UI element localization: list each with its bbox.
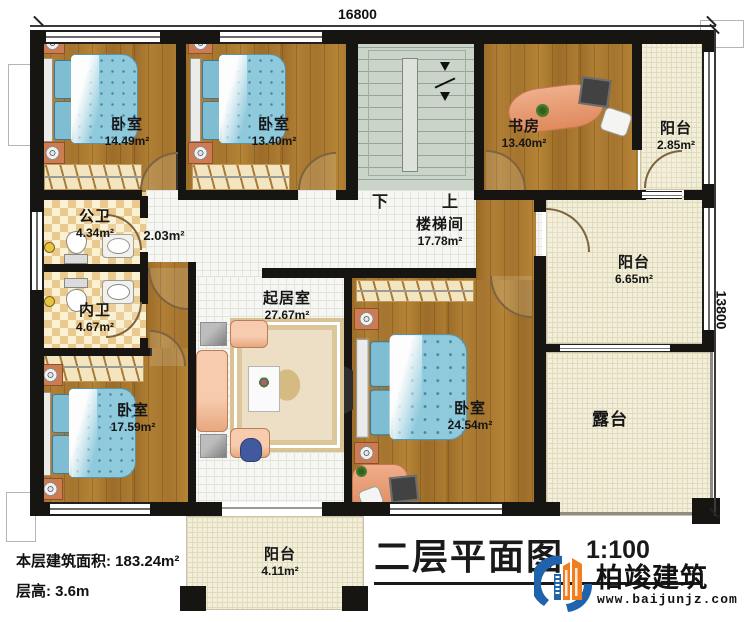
- wall-bed3-top: [30, 348, 152, 356]
- room-area: 24.54m²: [430, 418, 510, 432]
- wardrobe: [44, 164, 142, 190]
- armchair: [200, 322, 227, 346]
- wall-bed4-terrace: [534, 256, 546, 516]
- window-bed3-bottom: [50, 502, 150, 516]
- floor-height-note: 层高: 3.6m: [16, 580, 89, 601]
- room-name: 卧室: [234, 116, 314, 134]
- room-name: 露台: [575, 410, 645, 430]
- wall-corridor-stub-right: [188, 262, 196, 290]
- sofa-main: [196, 350, 228, 432]
- wall-bed2-stair: [346, 44, 358, 190]
- terrace-railing-right: [710, 352, 713, 514]
- room-area: 14.49m²: [87, 134, 167, 148]
- room-label-bedroom1: 卧室 14.49m²: [87, 116, 167, 148]
- room-name: 阳台: [230, 546, 330, 564]
- study-plant: [536, 104, 549, 117]
- room-name: 卧室: [430, 400, 510, 418]
- stair-break-arrow-bottom: [440, 92, 450, 101]
- wall-under-balcony-top: [684, 190, 716, 200]
- nightstand: [188, 142, 213, 164]
- nightstand: [354, 442, 379, 464]
- window-bath-left: [30, 212, 44, 290]
- room-label-living: 起居室 27.67m²: [245, 290, 329, 322]
- floor-plan-canvas: 下 上: [0, 0, 750, 622]
- room-label-balcony-bottom: 阳台 4.11m²: [230, 546, 330, 578]
- towel-knob: [44, 242, 55, 253]
- room-label-study: 书房 13.40m²: [484, 118, 564, 150]
- window-bed4-bottom: [390, 502, 502, 516]
- room-label-public-bath: 公卫 4.34m²: [55, 208, 135, 240]
- room-label-stairwell: 楼梯间 17.78m²: [388, 216, 492, 248]
- room-area: 4.34m²: [55, 226, 135, 240]
- study-computer: [578, 76, 612, 108]
- room-area: 2.85m²: [640, 138, 712, 152]
- room-name: 公卫: [55, 208, 135, 226]
- room-label-bedroom2: 卧室 13.40m²: [234, 116, 314, 148]
- wall-bath-divider: [36, 264, 142, 272]
- terrace-railing-bottom: [546, 512, 706, 515]
- room-area: 17.59m²: [93, 420, 173, 434]
- sink-basin: [107, 284, 130, 300]
- toilet-tank: [64, 254, 88, 264]
- wall-under-bed12: [178, 190, 298, 200]
- room-area: 17.78m²: [388, 234, 492, 248]
- room-name: 楼梯间: [388, 216, 492, 234]
- wall-corridor-balcony-a: [534, 190, 546, 212]
- wall-corridor-stub-left: [140, 262, 148, 284]
- room-label-balcony-top: 阳台 2.85m²: [640, 120, 712, 152]
- room-label-private-bath: 内卫 4.67m²: [55, 302, 135, 334]
- room-area: 27.67m²: [245, 308, 329, 322]
- wardrobe: [192, 164, 290, 190]
- room-name: 卧室: [93, 402, 173, 420]
- bed-headboard: [356, 339, 369, 438]
- wall-bed4-top: [350, 268, 476, 278]
- room-name: 阳台: [640, 120, 712, 138]
- dimension-line-top: [30, 25, 716, 27]
- room-name: 阳台: [592, 254, 676, 272]
- bed-headboard: [190, 58, 201, 142]
- window-balconyTR-bottom: [642, 191, 682, 199]
- room-name: 内卫: [55, 302, 135, 320]
- dimension-width-label: 16800: [338, 6, 377, 22]
- stair-up-label: 上: [442, 188, 458, 212]
- room-area: 2.03m²: [134, 228, 194, 244]
- room-label-hallway-area: 2.03m²: [134, 228, 194, 244]
- towel-knob: [44, 296, 55, 307]
- wall-stair-study: [474, 44, 484, 190]
- blanket: [240, 438, 262, 462]
- balconyB-pillar-right: [342, 586, 368, 611]
- wall-bath-right-a: [140, 196, 148, 218]
- room-name: 卧室: [87, 116, 167, 134]
- bedroom4-plant: [356, 466, 367, 477]
- window-bed2-top: [220, 30, 322, 44]
- sink-icon: [102, 280, 134, 304]
- sliding-door-balcony-bottom: [222, 502, 322, 516]
- loveseat: [230, 320, 268, 348]
- room-area: 4.11m²: [230, 564, 330, 578]
- room-label-bedroom4: 卧室 24.54m²: [430, 400, 510, 432]
- room-label-bedroom3: 卧室 17.59m²: [93, 402, 173, 434]
- coffee-table: [248, 366, 280, 412]
- window-bed1-top: [46, 30, 160, 44]
- bedroom4-computer: [389, 475, 420, 504]
- bed-sheet: [390, 335, 422, 439]
- brand-logo-icon: [534, 550, 598, 616]
- wall-hall-living: [262, 268, 352, 278]
- brand-website: www.baijunjz.com: [597, 592, 738, 607]
- room-area: 4.67m²: [55, 320, 135, 334]
- room-area: 13.40m²: [484, 136, 564, 150]
- stair-down-label: 下: [372, 188, 388, 212]
- wall-under-bed1: [30, 190, 142, 200]
- terrace-floor: [546, 352, 712, 516]
- room-area: 13.40m²: [234, 134, 314, 148]
- tv-icon: [344, 366, 353, 414]
- stair-rail: [402, 58, 418, 172]
- wardrobe: [356, 280, 474, 302]
- room-label-terrace: 露台: [575, 410, 645, 430]
- stair-break-arrow-top: [440, 62, 450, 71]
- floor-area-note: 本层建筑面积: 183.24m²: [16, 550, 179, 571]
- window-balconyR-bottom: [560, 344, 670, 352]
- nightstand: [354, 308, 379, 330]
- armchair: [200, 434, 227, 458]
- room-area: 6.65m²: [592, 272, 676, 286]
- room-name: 起居室: [245, 290, 329, 308]
- wall-under-bed2-stub: [336, 190, 358, 200]
- balconyB-pillar-left: [180, 586, 206, 611]
- room-name: 书房: [484, 118, 564, 136]
- dimension-height-label: 13800: [713, 291, 729, 330]
- brand-name: 柏竣建筑: [596, 556, 708, 595]
- room-label-balcony-right: 阳台 6.65m²: [592, 254, 676, 286]
- wall-living-bed3: [188, 290, 196, 516]
- wall-under-study: [474, 190, 646, 200]
- toilet-tank: [64, 278, 88, 288]
- dimension-line-right: [714, 30, 716, 516]
